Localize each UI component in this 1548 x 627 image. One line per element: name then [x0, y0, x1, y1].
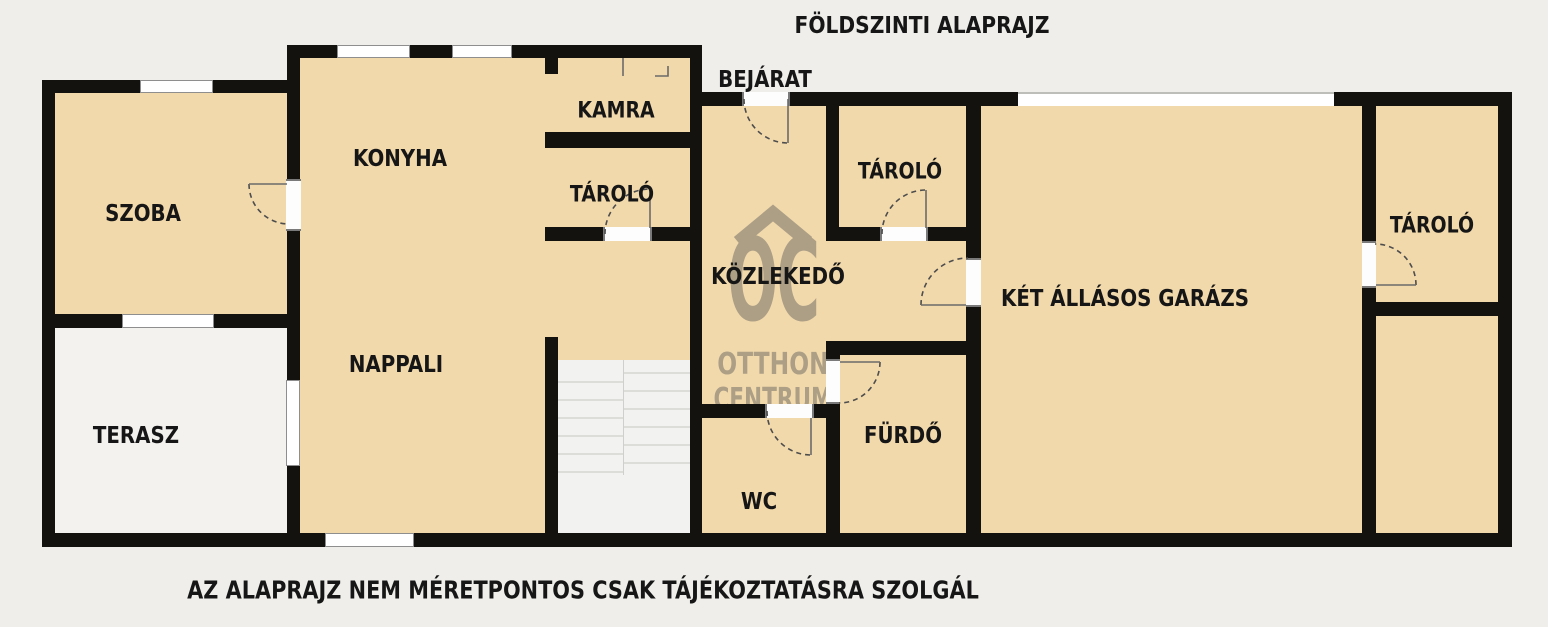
room-label-kozlekedo: KÖZLEKEDŐ: [711, 264, 845, 290]
room-label-szoba: SZOBA: [105, 201, 181, 227]
room-label-bejarat: BEJÁRAT: [718, 67, 812, 93]
floor-plan: OC OTTHON CENTRUM: [0, 0, 1548, 627]
room-label-tarolo-right: TÁROLÓ: [1390, 214, 1474, 239]
room-label-terasz: TERASZ: [93, 423, 179, 449]
room-label-furdo: FÜRDŐ: [864, 423, 942, 449]
room-label-nappali: NAPPALI: [349, 352, 443, 378]
page-title: FÖLDSZINTI ALAPRAJZ: [795, 11, 1050, 39]
room-label-kamra: KAMRA: [577, 99, 654, 124]
door-swing-arcs: [0, 0, 1548, 627]
disclaimer-text: AZ ALAPRAJZ NEM MÉRETPONTOS CSAK TÁJÉKOZ…: [187, 576, 979, 605]
room-label-garazs: KÉT ÁLLÁSOS GARÁZS: [1001, 286, 1249, 312]
room-label-konyha: KONYHA: [353, 146, 447, 172]
room-label-wc: WC: [741, 489, 777, 515]
room-label-tarolo-left: TÁROLÓ: [570, 183, 654, 208]
room-label-tarolo-middle: TÁROLÓ: [858, 160, 942, 185]
